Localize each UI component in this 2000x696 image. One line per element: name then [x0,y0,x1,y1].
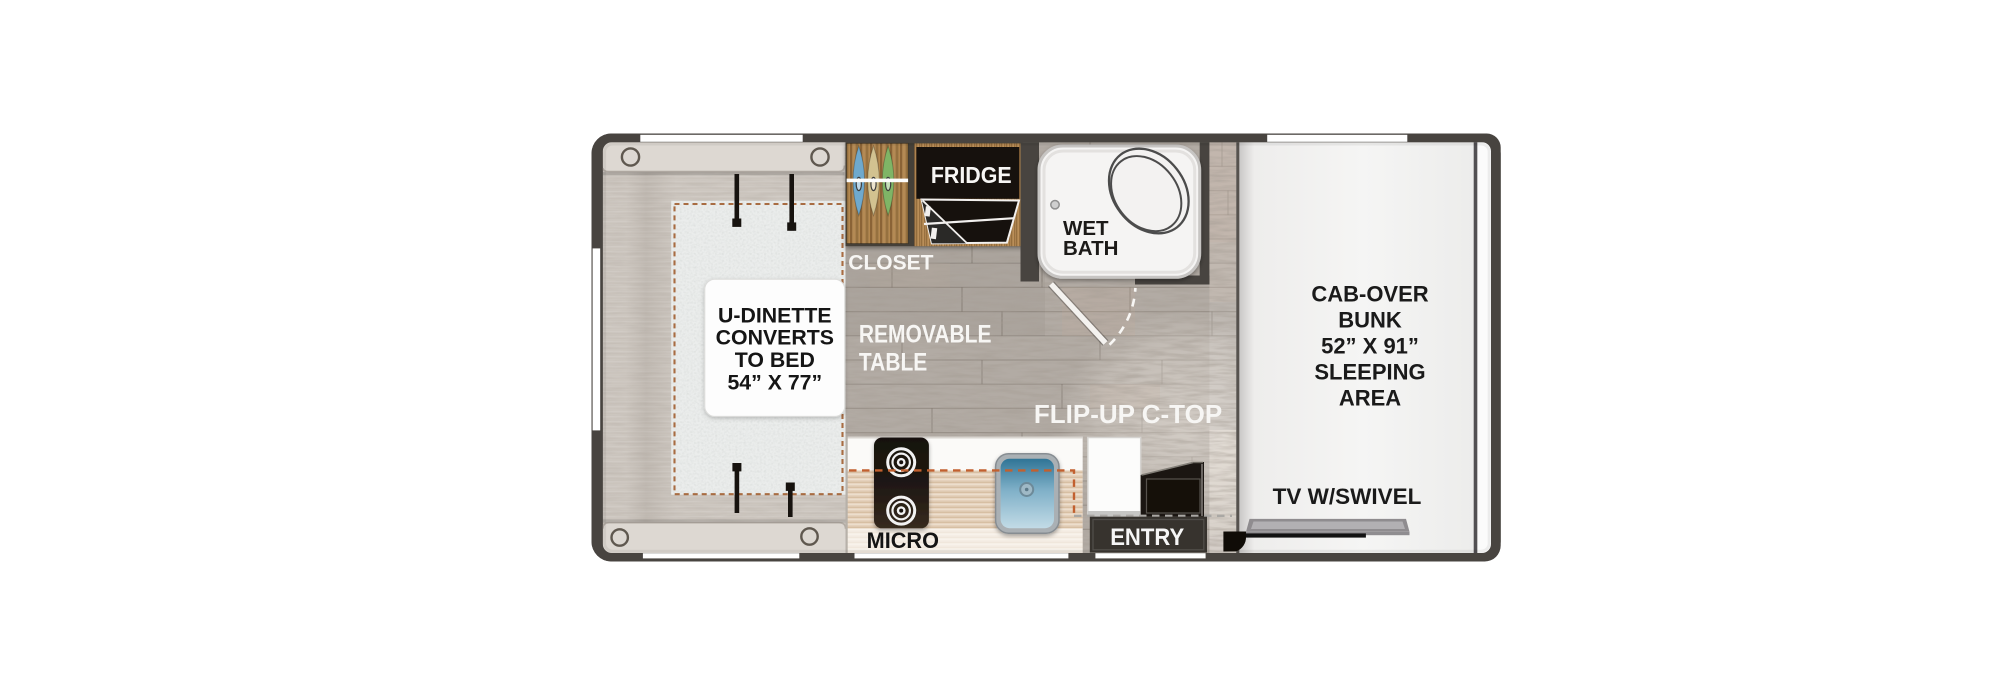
svg-text:TV W/SWIVEL: TV W/SWIVEL [1273,484,1422,509]
svg-text:TO BED: TO BED [735,348,815,372]
svg-text:U-DINETTE: U-DINETTE [718,303,832,327]
svg-text:MICRO: MICRO [867,528,939,554]
svg-text:SLEEPING: SLEEPING [1314,360,1425,385]
svg-text:54” X 77”: 54” X 77” [727,370,822,394]
svg-text:TABLE: TABLE [859,348,927,376]
svg-text:CONVERTS: CONVERTS [716,326,834,350]
svg-text:52” X 91”: 52” X 91” [1321,334,1419,359]
svg-text:FRIDGE: FRIDGE [931,162,1012,188]
svg-text:BUNK: BUNK [1338,308,1402,333]
svg-text:ENTRY: ENTRY [1110,523,1184,550]
svg-text:CLOSET: CLOSET [848,252,933,275]
svg-text:BATH: BATH [1063,237,1118,260]
svg-text:AREA: AREA [1339,386,1401,411]
svg-text:CAB-OVER: CAB-OVER [1311,282,1428,307]
svg-text:FLIP-UP C-TOP: FLIP-UP C-TOP [1034,399,1222,429]
svg-text:REMOVABLE: REMOVABLE [859,320,992,348]
